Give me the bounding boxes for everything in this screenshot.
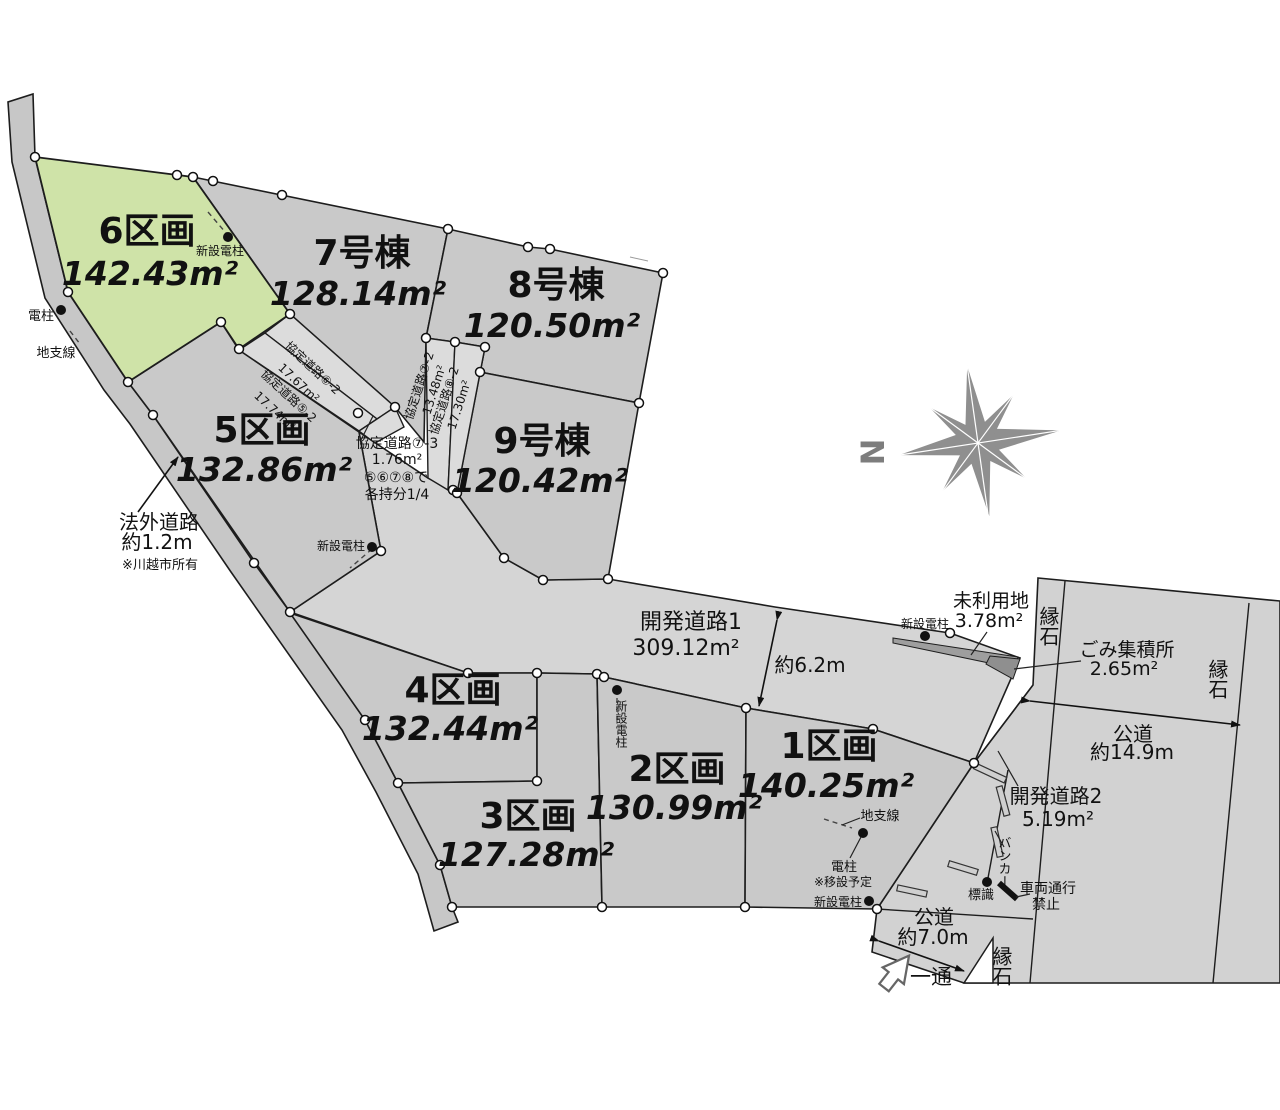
boundary-point [476,368,485,377]
no-vehicle-label-2: 禁止 [1032,897,1060,913]
boundary-point [278,191,287,200]
boundary-point [635,399,644,408]
kyotei-7-3-label: 協定道路⑦-3 [356,436,439,452]
boundary-point [659,269,668,278]
boundary-point [209,177,218,186]
lot-3-name-label: 3区画 [479,796,576,837]
boundary-point [604,575,613,584]
pole-dot [56,305,66,315]
dev-road-1-width-label: 約6.2m [774,653,845,677]
pole-dot [612,685,622,695]
boundary-point [391,403,400,412]
public-road-bottom-width: 約7.0m [897,925,968,949]
lot-9-name-label: 9号棟 [493,421,591,462]
boundary-point [250,559,259,568]
guywire-label-west: 地支線 [36,345,75,361]
boundary-point [500,554,509,563]
lot-6-area-label: 142.43m² [62,254,239,293]
lot-8-name-label: 8号棟 [507,265,605,306]
lot-9-area-label: 120.42m² [452,461,629,500]
kyotei-7-3-share-note-2: 各持分1/4 [365,487,430,503]
boundary-tick [630,257,648,261]
pole-dot [982,877,992,887]
lot-2-name-label: 2区画 [628,749,725,790]
new-pole-label-lot5: 新設電柱 [317,538,365,553]
boundary-point [444,225,453,234]
lot-1-name-label: 1区画 [780,726,877,767]
dev-road-1-area: 309.12m² [632,636,739,661]
boundary-point [600,673,609,682]
hogai-road-owner-note: ※川越市所有 [122,557,198,573]
boundary-point [533,669,542,678]
lot-3-area-label: 127.28m² [438,835,615,874]
unused-land-label: 未利用地 [953,590,1029,612]
boundary-point [286,608,295,617]
boundary-point [31,153,40,162]
lot-7-area-label: 128.14m² [270,274,447,313]
boundary-point [873,905,882,914]
pole-dot [367,542,377,552]
boundary-point [524,243,533,252]
new-pole-label-lot1: 新設電柱 [814,894,862,909]
boundary-point [394,779,403,788]
dev-road-2-label: 開発道路2 [1010,784,1103,808]
one-way-label: 一通 [910,965,952,989]
dev-road-2-area: 5.19m² [1022,807,1094,831]
no-vehicle-label-1: 車両通行 [1020,880,1076,897]
pole-dot [920,631,930,641]
boundary-point [124,378,133,387]
lot-7-name-label: 7号棟 [313,233,411,274]
unused-land-area: 3.78m² [955,610,1023,632]
curb-label-east: 縁石 [1205,659,1229,699]
hogai-road-width: 約1.2m [121,530,192,554]
boundary-point [741,903,750,912]
garbage-station-area: 2.65m² [1090,658,1158,680]
compass-rose [888,354,1072,527]
new-pole-label-lot2: 新設電柱 [614,699,628,749]
lot-map-page: N 6 [0,0,1280,1110]
site-plan-svg: N 6 [0,0,1280,1110]
boundary-point [970,759,979,768]
lot-5-name-label: 5区画 [213,410,310,451]
kyotei-7-3-share-note-1: ⑤⑥⑦⑧で [364,470,428,486]
guywire-label-lot1: 地支線 [860,808,899,824]
boundary-point [533,777,542,786]
new-pole-label-unused: 新設電柱 [901,616,949,631]
lot-4-area-label: 132.44m² [362,709,539,748]
boundary-point [598,903,607,912]
boundary-point [189,173,198,182]
relocate-pole-label-1: 電柱 [831,860,857,875]
pole-label-west: 電柱 [28,309,54,324]
kyotei-7-3-area: 1.76m² [372,452,422,468]
compass-north-label: N [854,439,892,466]
boundary-point [546,245,555,254]
lot-2-area-label: 130.99m² [586,788,763,827]
lot-5-area-label: 132.86m² [176,450,353,489]
public-road-right-width: 約14.9m [1090,740,1174,764]
boundary-point [149,411,158,420]
lot-6-name-label: 6区画 [98,211,195,252]
lot-1-area-label: 140.25m² [738,766,915,805]
boundary-point [377,547,386,556]
boundary-point [422,334,431,343]
sign-label: 標識 [968,888,994,903]
boundary-point [448,903,457,912]
pole-dot [864,896,874,906]
boundary-point [742,704,751,713]
curb-label-bottom: 縁石 [989,946,1013,986]
pole-dot [223,232,233,242]
bunker-label: バンカー [996,836,1012,888]
new-pole-label-lot6: 新設電柱 [196,243,244,258]
dev-road-1-label: 開発道路1 [640,610,742,635]
lot-8-area-label: 120.50m² [464,306,641,345]
boundary-point [173,171,182,180]
boundary-point [539,576,548,585]
boundary-point [451,338,460,347]
relocate-pole-label-2: ※移設予定 [814,874,872,889]
boundary-point [217,318,226,327]
boundary-point [354,409,363,418]
curb-label-west: 縁石 [1036,606,1060,646]
lot-4-name-label: 4区画 [404,670,501,711]
pole-dot [858,828,868,838]
boundary-point [235,345,244,354]
